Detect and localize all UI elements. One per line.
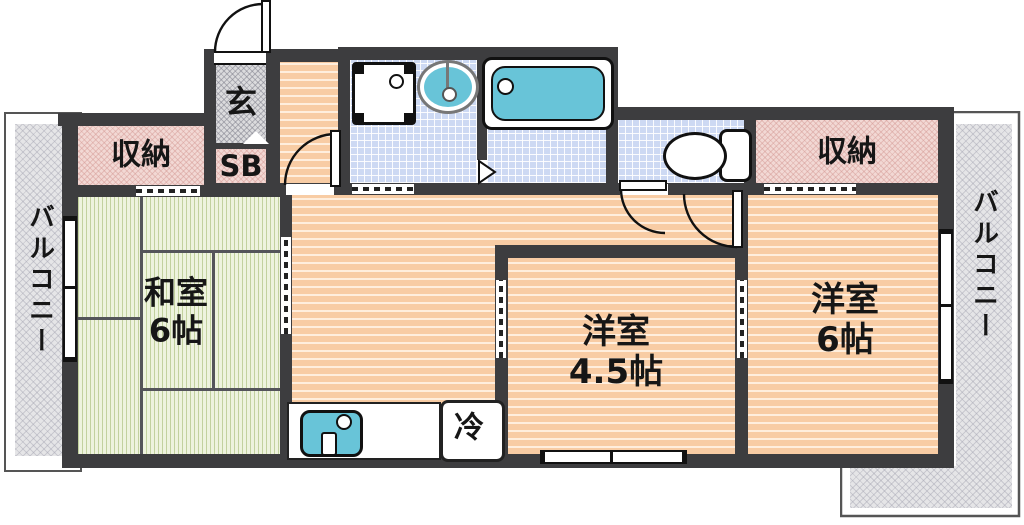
entrance-threshold <box>214 51 266 65</box>
western-room-large-window <box>939 229 953 384</box>
western-room-small-sliding-door-right <box>737 280 747 358</box>
wall <box>204 183 280 195</box>
drain-icon <box>336 414 352 430</box>
washing-machine-pan <box>352 62 416 125</box>
bathtub <box>482 57 614 130</box>
wall <box>58 113 216 126</box>
western-room-large-label: 洋室 6帖 <box>811 280 879 360</box>
floor-plan: 玄 SB 収納 収納 和室 6帖 洋室 4.5帖 洋室 6帖 バルコニー バルコ… <box>0 0 1024 525</box>
drain-icon <box>442 87 457 102</box>
toilet-doorway <box>620 184 668 195</box>
faucet-icon <box>446 61 449 89</box>
refrigerator-label: 冷 <box>454 410 484 445</box>
storage-left-sliding-door <box>136 186 200 196</box>
wall <box>266 49 280 193</box>
tatami-line <box>140 388 280 391</box>
tatami-line <box>140 250 280 253</box>
storage-left-label: 収納 <box>111 137 171 172</box>
balcony-left-label: バルコニー <box>22 203 59 358</box>
entrance-door-arc <box>215 4 263 52</box>
entrance-door-leaf <box>262 1 270 52</box>
wall <box>495 245 748 258</box>
washroom-sink <box>417 60 479 114</box>
western-room-small-sliding-door-left <box>496 280 506 358</box>
toilet-bowl <box>663 132 727 180</box>
western-room-small-label: 洋室 4.5帖 <box>569 312 663 392</box>
drain-icon <box>389 74 404 89</box>
faucet-icon <box>321 432 337 456</box>
japanese-room-window <box>63 216 77 362</box>
hallway-floor <box>276 55 342 190</box>
entrance-label: 玄 <box>225 84 257 122</box>
tatami-line <box>212 250 215 391</box>
balcony-right-label: バルコニー <box>966 188 1003 343</box>
drain-icon <box>497 78 514 95</box>
storage-right-label: 収納 <box>817 134 877 169</box>
western-room-small-window <box>540 450 687 464</box>
tatami-line <box>140 197 143 454</box>
hallway-doorway <box>286 184 334 195</box>
tatami-line <box>78 317 140 320</box>
storage-right-sliding-door <box>764 184 856 194</box>
japanese-room-label: 和室 6帖 <box>144 274 208 350</box>
shoe-box-label: SB <box>220 149 263 183</box>
kitchen-sink <box>300 410 363 457</box>
wall <box>338 47 350 193</box>
wall <box>204 49 216 193</box>
washroom-sliding-door <box>352 184 414 194</box>
wall <box>62 454 954 468</box>
wall <box>606 107 954 120</box>
japanese-room-sliding-door <box>281 237 291 334</box>
